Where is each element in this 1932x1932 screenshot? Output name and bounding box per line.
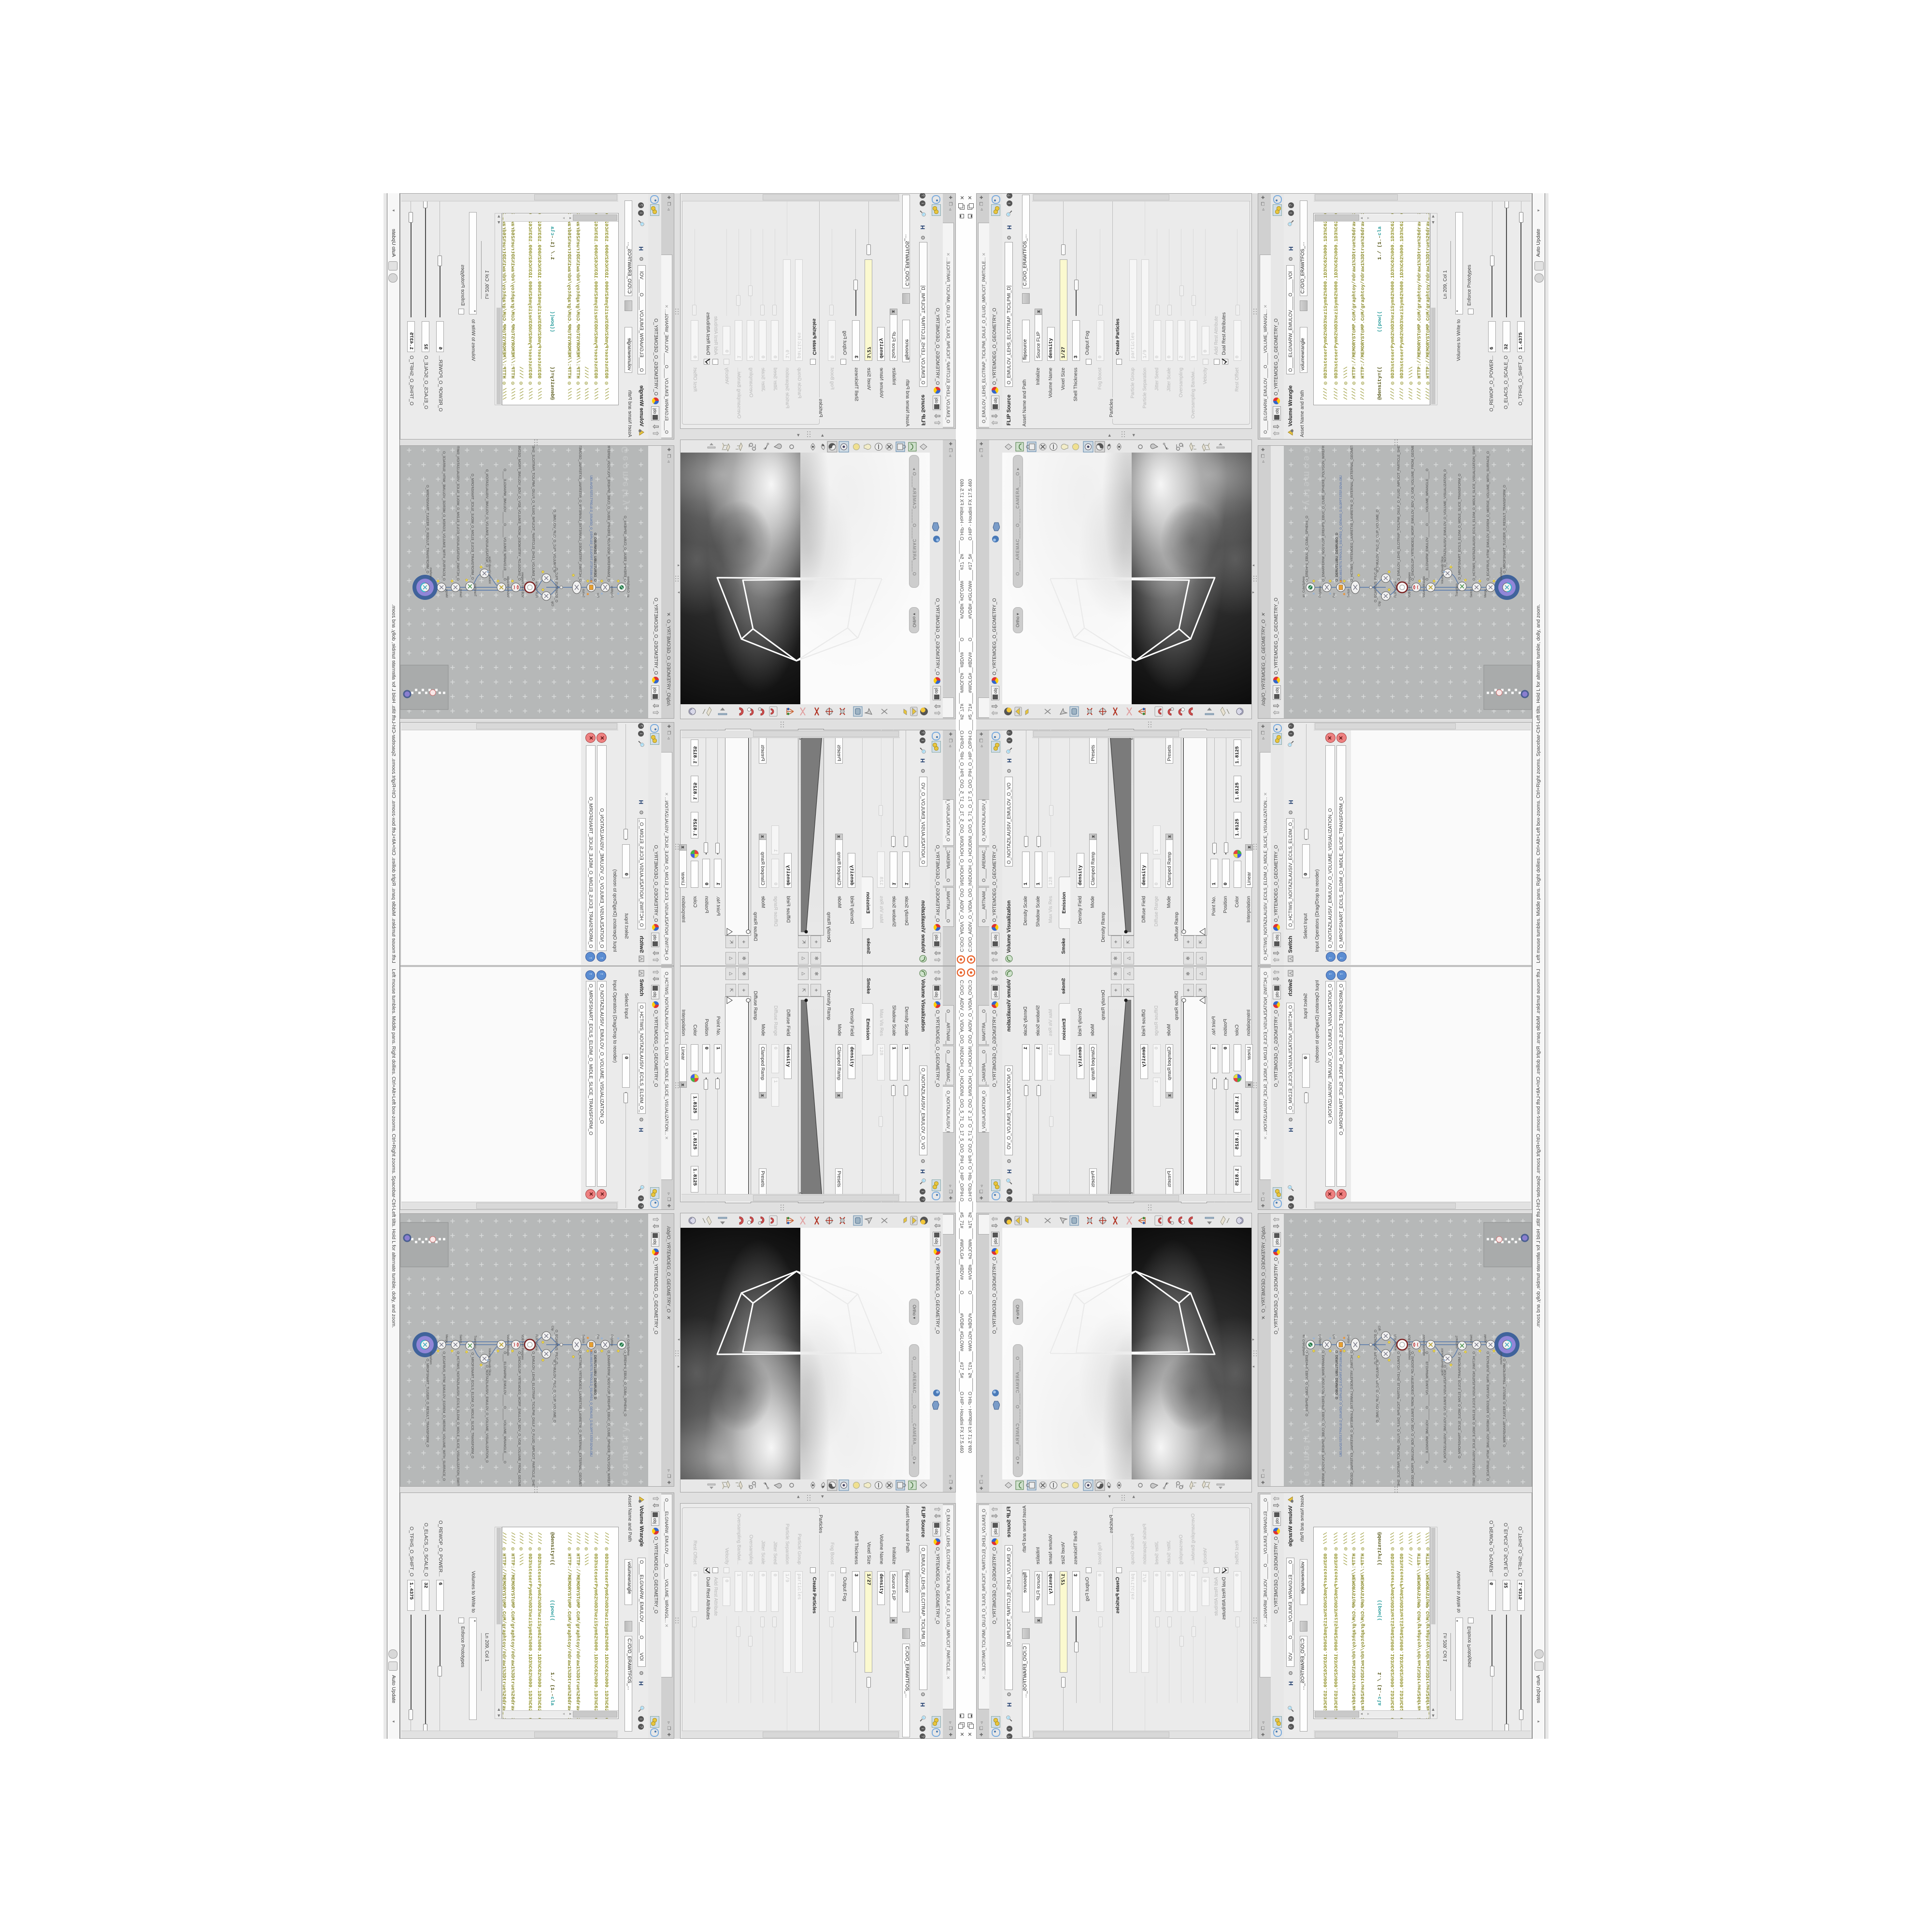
svg-text:O_EMARFERIW_NOGYLOP_EREHPS_EBU: O_EMARFERIW_NOGYLOP_EREHPS_EBUC_O_CUBE_S…: [607, 1350, 610, 1486]
svg-text:File: File: [596, 1335, 599, 1339]
svg-text:O_EMULOV_PILC_O_CLIP_VOLUME_O: O_EMULOV_PILC_O_CLIP_VOLUME_O: [553, 510, 556, 572]
svg-text:O_MROFSNART_ECILS_ELDIM_O_MIDL: O_MROFSNART_ECILS_ELDIM_O_MIDLE_SLICE_TR…: [1458, 1352, 1462, 1459]
svg-text:Transform: Transform: [429, 568, 432, 581]
svg-text:VDB from Polygons: VDB from Polygons: [521, 1335, 524, 1360]
svg-text:Transform: Transform: [1456, 1335, 1459, 1349]
svg-text:FLIP Source: FLIP Source: [535, 581, 538, 597]
svg-text:File: File: [1333, 593, 1336, 597]
svg-text:O_ECAFRUS_HTIW_EMULOV_EGREM_O_: O_ECAFRUS_HTIW_EMULOV_EGREM_O_MERGE_VOLU…: [442, 451, 445, 581]
svg-text:Transform: Transform: [429, 1351, 432, 1364]
svg-text:O_HCTIWS_YRTEMOEG_LANRETXE_LAN: O_HCTIWS_YRTEMOEG_LANRETXE_LANRETNI_O_IN…: [1350, 446, 1354, 582]
svg-text:O_DERUTLUBU_DENRUBO_D: O_DERUTLUBU_DENRUBO_D: [593, 1350, 597, 1399]
svg-text:Merge: Merge: [1484, 1335, 1487, 1343]
svg-text:Switch: Switch: [1348, 1335, 1350, 1343]
svg-text:Clip: Clip: [551, 1326, 554, 1331]
svg-text:O_EMULOV_PILC_O_CLIP_VOLUME_O: O_EMULOV_PILC_O_CLIP_VOLUME_O: [1376, 510, 1379, 572]
svg-text:Clip: Clip: [551, 601, 554, 606]
svg-text:JBD.M03.PETS.TRPOLS.D_5SLVREG_: JBD.M03.PETS.TRPOLS.D_5SLVREG_O_GENUSS_D…: [589, 1350, 592, 1457]
svg-text:Merge: Merge: [1484, 589, 1487, 597]
svg-text:O_HCTIWS_YRTEMOEG_LANRETXE_LAN: O_HCTIWS_YRTEMOEG_LANRETXE_LANRETNI_O_IN…: [578, 446, 582, 582]
svg-text:O_MROFSNART_TLUSER_O_RESULT_TR: O_MROFSNART_TLUSER_O_RESULT_TRANSFORM_O: [426, 485, 429, 573]
svg-text:Switch: Switch: [582, 589, 584, 597]
svg-text:O_EMARFERIW_NOGYLOP_EREHPS_EBU: O_EMARFERIW_NOGYLOP_EREHPS_EBUC_O_CUBE_S…: [607, 446, 610, 582]
svg-text:PolyWire: PolyWire: [1319, 585, 1322, 597]
svg-text:O_HCTIWS_NOITAZILAUSIV_ECILS_E: O_HCTIWS_NOITAZILAUSIV_ECILS_ELDIM_O_MID…: [456, 1351, 459, 1486]
svg-text:VDB from Polygons: VDB from Polygons: [521, 572, 524, 597]
svg-text:O_EREHPS_EBUC_O_CUBE_SPHERE_O: O_EREHPS_EBUC_O_CUBE_SPHERE_O: [623, 1350, 626, 1417]
svg-text:Volume Wrangle: Volume Wrangle: [506, 576, 509, 597]
svg-text:O_EMULOV_LEHS_ELCITRAP_TICILPM: O_EMULOV_LEHS_ELCITRAP_TICILPMI_DIULF_O_…: [531, 446, 535, 581]
svg-text:JBD.M03.PETS.TRPOLS.D_5SLVREG_: JBD.M03.PETS.TRPOLS.D_5SLVREG_O_GENUSS_D…: [1340, 475, 1343, 582]
svg-text:File: File: [1333, 1335, 1336, 1339]
svg-text:FLIP Source: FLIP Source: [1394, 1335, 1397, 1351]
svg-text:Transform: Transform: [1456, 583, 1459, 597]
svg-text:JBD.M03.PETS.TRPOLS.D_5SLVREG_: JBD.M03.PETS.TRPOLS.D_5SLVREG_O_GENUSS_D…: [1340, 1350, 1343, 1457]
svg-text:O_ECAFRUS_HTIW_EMULOV_EGREM_O_: O_ECAFRUS_HTIW_EMULOV_EGREM_O_MERGE_VOLU…: [442, 1351, 445, 1481]
svg-text:Transform: Transform: [473, 1335, 476, 1349]
svg-text:O____ELGNARW_EMULOV______O____: O____ELGNARW_EMULOV______O______VOLUME_W…: [1426, 1351, 1429, 1463]
svg-text:Switch: Switch: [1470, 1335, 1473, 1343]
svg-text:Clip: Clip: [1378, 1326, 1381, 1331]
svg-text:O_EREHPS_EBUC_O_CUBE_SPHERE_O: O_EREHPS_EBUC_O_CUBE_SPHERE_O: [623, 515, 626, 582]
svg-text:PolyWire: PolyWire: [610, 1335, 613, 1347]
svg-text:Switch: Switch: [582, 1335, 584, 1343]
svg-text:O____ELGNARW_EMULOV______O____: O____ELGNARW_EMULOV______O______VOLUME_W…: [1426, 469, 1429, 581]
svg-text:FLIP Source: FLIP Source: [1394, 581, 1397, 597]
svg-text:O_SNOGILOP_YRTEMOEG_MORF_EMULO: O_SNOGILOP_YRTEMOEG_MORF_EMULOV_BDV_O_VD…: [1411, 446, 1415, 581]
svg-text:an_CubeSphere: an_CubeSphere: [626, 576, 629, 597]
svg-text:O_EMARFERIW_NOGYLOP_EREHPS_EBU: O_EMARFERIW_NOGYLOP_EREHPS_EBUC_O_CUBE_S…: [1322, 446, 1325, 582]
svg-text:PolyWire: PolyWire: [1319, 1335, 1322, 1347]
svg-text:O_HCTIWS_NOITAZILAUSIV_ECILS_E: O_HCTIWS_NOITAZILAUSIV_ECILS_ELDIM_O_MID…: [1473, 1351, 1476, 1486]
svg-text:O_MROFSNART_ECILS_ELDIM_O_MIDL: O_MROFSNART_ECILS_ELDIM_O_MIDLE_SLICE_TR…: [470, 1352, 474, 1459]
svg-text:Switch: Switch: [1470, 589, 1473, 597]
svg-text:Switch: Switch: [459, 1335, 462, 1343]
svg-text:O_MROFSNART_ECILS_ELDIM_O_MIDL: O_MROFSNART_ECILS_ELDIM_O_MIDLE_SLICE_TR…: [470, 473, 474, 580]
svg-text:O_MROFSNART_ECILS_ELDIM_O_MIDL: O_MROFSNART_ECILS_ELDIM_O_MIDLE_SLICE_TR…: [1458, 473, 1462, 580]
svg-text:O_EREHPS_EBUC_O_CUBE_SPHERE_O: O_EREHPS_EBUC_O_CUBE_SPHERE_O: [1306, 515, 1309, 582]
svg-text:Transform: Transform: [473, 583, 476, 597]
svg-text:O_SNOGILOP_YRTEMOEG_MORF_EMULO: O_SNOGILOP_YRTEMOEG_MORF_EMULOV_BDV_O_VD…: [1411, 1351, 1415, 1486]
svg-text:an_CubeSphere: an_CubeSphere: [626, 1335, 629, 1356]
svg-text:O_NOITAZILAUSIV_EMULOV_O_VOLUM: O_NOITAZILAUSIV_EMULOV_O_VOLUME_VISUALIZ…: [485, 469, 488, 567]
svg-text:O____ELGNARW_EMULOV______O____: O____ELGNARW_EMULOV______O______VOLUME_W…: [503, 469, 506, 581]
svg-text:Merge: Merge: [445, 589, 448, 597]
svg-text:O_NOITAZILAUSIV_EMULOV_O_VOLUM: O_NOITAZILAUSIV_EMULOV_O_VOLUME_VISUALIZ…: [485, 1365, 488, 1463]
svg-text:O_DERUTLUBU_DENRUBO_D: O_DERUTLUBU_DENRUBO_D: [593, 533, 597, 582]
svg-text:O_MROFSNART_TLUSER_O_RESULT_TR: O_MROFSNART_TLUSER_O_RESULT_TRANSFORM_O: [426, 1359, 429, 1447]
svg-text:O_EMULOV_LEHS_ELCITRAP_TICILPM: O_EMULOV_LEHS_ELCITRAP_TICILPMI_DIULF_O_…: [531, 1351, 535, 1486]
svg-text:O_EMULOV_LEHS_ELCITRAP_TICILPM: O_EMULOV_LEHS_ELCITRAP_TICILPMI_DIULF_O_…: [1397, 1351, 1401, 1486]
svg-text:O_EMARFERIW_NOGYLOP_EREHPS_EBU: O_EMARFERIW_NOGYLOP_EREHPS_EBUC_O_CUBE_S…: [1322, 1350, 1325, 1486]
svg-text:Clip: Clip: [1378, 601, 1381, 606]
svg-text:O_NOITAZILAUSIV_EMULOV_O_VOLUM: O_NOITAZILAUSIV_EMULOV_O_VOLUME_VISUALIZ…: [1444, 1365, 1447, 1463]
svg-text:O_EMULOV_LEHS_ELCITRAP_TICILPM: O_EMULOV_LEHS_ELCITRAP_TICILPMI_DIULF_O_…: [1397, 446, 1401, 581]
svg-text:O_HCTIWS_NOITAZILAUSIV_ECILS_E: O_HCTIWS_NOITAZILAUSIV_ECILS_ELDIM_O_MID…: [456, 446, 459, 581]
svg-text:O_ECAFRUS_PILC_O: O_ECAFRUS_PILC_O: [1374, 568, 1378, 602]
svg-text:O_HCTIWS_YRTEMOEG_LANRETXE_LAN: O_HCTIWS_YRTEMOEG_LANRETXE_LANRETNI_O_IN…: [578, 1350, 582, 1486]
svg-text:O_HCTIWS_YRTEMOEG_LANRETXE_LAN: O_HCTIWS_YRTEMOEG_LANRETXE_LANRETNI_O_IN…: [1350, 1350, 1354, 1486]
svg-text:O_MROFSNART_TLUSER_O_RESULT_TR: O_MROFSNART_TLUSER_O_RESULT_TRANSFORM_O: [1503, 485, 1506, 573]
svg-text:File: File: [596, 593, 599, 597]
svg-text:O_EMULOV_PILC_O_CLIP_VOLUME_O: O_EMULOV_PILC_O_CLIP_VOLUME_O: [553, 1360, 556, 1422]
svg-text:O_SNOGILOP_YRTEMOEG_MORF_EMULO: O_SNOGILOP_YRTEMOEG_MORF_EMULOV_BDV_O_VD…: [517, 446, 521, 581]
svg-text:O_SNOGILOP_YRTEMOEG_MORF_EMULO: O_SNOGILOP_YRTEMOEG_MORF_EMULOV_BDV_O_VD…: [517, 1351, 521, 1486]
svg-text:Switch: Switch: [1348, 589, 1350, 597]
svg-text:O_EMULOV_PILC_O_CLIP_VOLUME_O: O_EMULOV_PILC_O_CLIP_VOLUME_O: [1376, 1360, 1379, 1422]
svg-text:Merge: Merge: [445, 1335, 448, 1343]
svg-text:O_EREHPS_EBUC_O_CUBE_SPHERE_O: O_EREHPS_EBUC_O_CUBE_SPHERE_O: [1306, 1350, 1309, 1417]
svg-text:O_NOITAZILAUSIV_EMULOV_O_VOLUM: O_NOITAZILAUSIV_EMULOV_O_VOLUME_VISUALIZ…: [1444, 469, 1447, 567]
svg-text:O_DERUTLUBU_DENRUBO_D: O_DERUTLUBU_DENRUBO_D: [1335, 1350, 1339, 1399]
svg-text:O____ELGNARW_EMULOV______O____: O____ELGNARW_EMULOV______O______VOLUME_W…: [503, 1351, 506, 1463]
svg-text:O_ECAFRUS_PILC_O: O_ECAFRUS_PILC_O: [554, 568, 558, 602]
svg-text:O_HCTIWS_NOITAZILAUSIV_ECILS_E: O_HCTIWS_NOITAZILAUSIV_ECILS_ELDIM_O_MID…: [1473, 446, 1476, 581]
svg-text:Volume Wrangle: Volume Wrangle: [506, 1335, 509, 1356]
svg-text:Switch: Switch: [459, 589, 462, 597]
svg-text:O_ECAFRUS_HTIW_EMULOV_EGREM_O_: O_ECAFRUS_HTIW_EMULOV_EGREM_O_MERGE_VOLU…: [1487, 451, 1490, 581]
svg-text:PolyWire: PolyWire: [610, 585, 613, 597]
svg-text:JBD.M03.PETS.TRPOLS.D_5SLVREG_: JBD.M03.PETS.TRPOLS.D_5SLVREG_O_GENUSS_D…: [589, 475, 592, 582]
svg-text:O_ECAFRUS_HTIW_EMULOV_EGREM_O_: O_ECAFRUS_HTIW_EMULOV_EGREM_O_MERGE_VOLU…: [1487, 1351, 1490, 1481]
svg-text:O_MROFSNART_TLUSER_O_RESULT_TR: O_MROFSNART_TLUSER_O_RESULT_TRANSFORM_O: [1503, 1359, 1506, 1447]
svg-text:FLIP Source: FLIP Source: [535, 1335, 538, 1351]
svg-text:O_DERUTLUBU_DENRUBO_D: O_DERUTLUBU_DENRUBO_D: [1335, 533, 1339, 582]
